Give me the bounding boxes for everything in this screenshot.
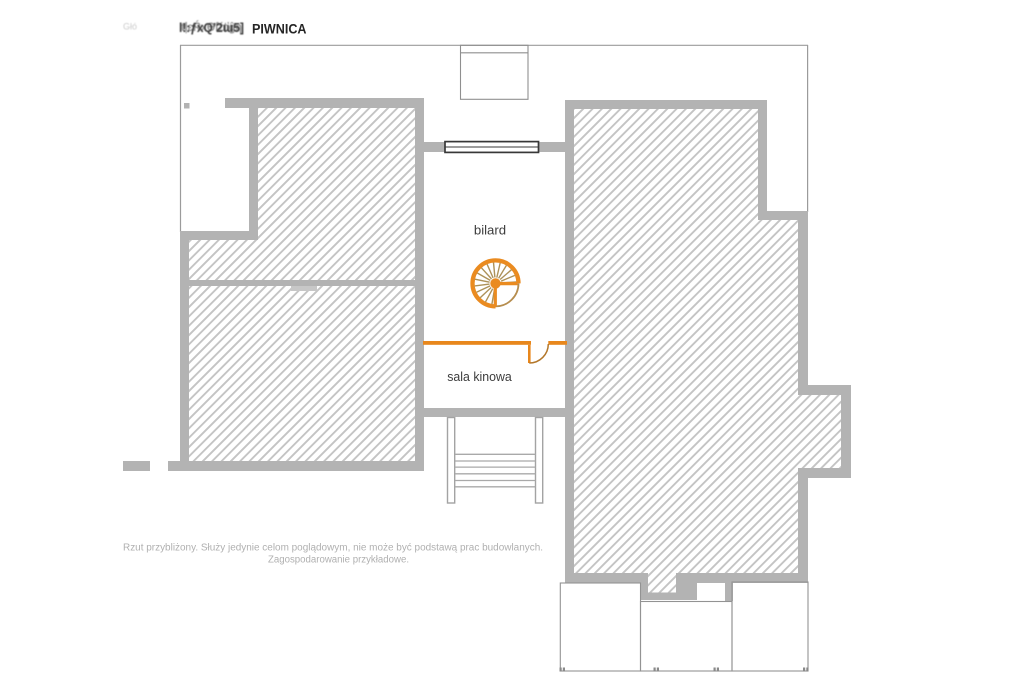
svg-text:Głó: Głó: [123, 22, 137, 32]
svg-text:tļɛŔxӨſźťĝƞ: tļɛŔxӨſźťĝƞ: [181, 19, 242, 34]
svg-text:Rzut przybliżony. Służy jedyni: Rzut przybliżony. Służy jedynie celom po…: [123, 542, 543, 553]
svg-text:PIWNICA: PIWNICA: [252, 21, 307, 37]
svg-text:bilard: bilard: [474, 222, 506, 237]
svg-text:sala kinowa: sala kinowa: [447, 369, 512, 384]
svg-text:Zagospodarowanie przykładowe.: Zagospodarowanie przykładowe.: [268, 554, 409, 565]
